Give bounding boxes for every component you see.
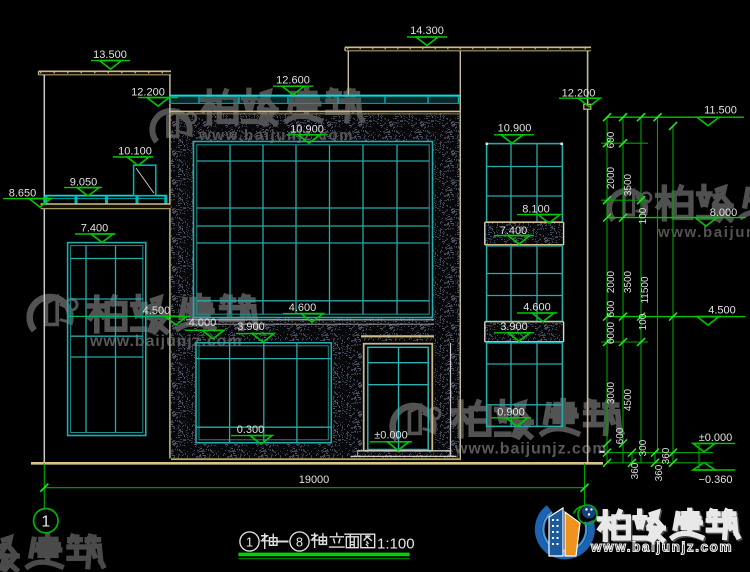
svg-text:3500: 3500 <box>623 173 634 196</box>
svg-text:4.500: 4.500 <box>143 305 171 317</box>
svg-text:8.100: 8.100 <box>522 204 550 216</box>
svg-text:3000: 3000 <box>606 381 617 404</box>
svg-text:11.500: 11.500 <box>704 105 737 117</box>
svg-text:11500: 11500 <box>640 276 651 304</box>
svg-text:4.600: 4.600 <box>289 302 317 314</box>
svg-text:www.baijunjz.com: www.baijunjz.com <box>89 333 243 350</box>
svg-text:±0.000: ±0.000 <box>699 432 733 444</box>
svg-text:4.000: 4.000 <box>189 317 217 329</box>
svg-text:4.500: 4.500 <box>708 305 736 317</box>
svg-text:7.400: 7.400 <box>81 223 109 235</box>
svg-text:600: 600 <box>615 427 626 444</box>
svg-text:10.100: 10.100 <box>118 146 152 158</box>
svg-text:2000: 2000 <box>606 270 617 293</box>
svg-text:0.900: 0.900 <box>497 407 525 419</box>
svg-text:1: 1 <box>246 535 253 550</box>
svg-text:3.900: 3.900 <box>500 321 528 333</box>
svg-text:±0.000: ±0.000 <box>374 430 408 442</box>
svg-text:1:100: 1:100 <box>377 536 415 553</box>
svg-text:4.600: 4.600 <box>523 302 551 314</box>
svg-text:10.900: 10.900 <box>498 123 532 135</box>
svg-text:6000: 6000 <box>606 321 617 344</box>
svg-text:1: 1 <box>41 514 50 531</box>
svg-text:19000: 19000 <box>299 474 330 486</box>
svg-text:−0.360: −0.360 <box>699 474 733 486</box>
svg-text:10.900: 10.900 <box>290 124 324 136</box>
svg-text:4500: 4500 <box>623 388 634 411</box>
svg-text:14.300: 14.300 <box>410 25 444 37</box>
svg-text:12.600: 12.600 <box>276 75 310 87</box>
svg-text:300: 300 <box>638 439 649 456</box>
svg-text:8: 8 <box>296 535 303 550</box>
svg-text:600: 600 <box>606 131 617 148</box>
svg-text:600: 600 <box>606 300 617 317</box>
svg-text:www.baijun: www.baijun <box>657 224 750 241</box>
svg-text:2000: 2000 <box>606 166 617 189</box>
svg-text:www.baijunjz.com: www.baijunjz.com <box>590 540 733 555</box>
svg-text:360: 360 <box>661 447 672 464</box>
svg-text:3.900: 3.900 <box>237 321 265 333</box>
svg-text:100: 100 <box>638 313 649 330</box>
svg-text:100: 100 <box>638 207 649 224</box>
svg-text:www.baijunjz.com: www.baijunjz.com <box>454 441 608 458</box>
svg-text:360: 360 <box>630 462 641 479</box>
svg-text:3500: 3500 <box>623 270 634 293</box>
svg-text:13.500: 13.500 <box>93 49 127 61</box>
svg-text:0.300: 0.300 <box>237 424 265 436</box>
svg-text:12.200: 12.200 <box>131 87 165 99</box>
svg-text:360: 360 <box>654 464 665 481</box>
svg-text:9.050: 9.050 <box>70 177 98 189</box>
svg-text:8.650: 8.650 <box>9 188 37 200</box>
